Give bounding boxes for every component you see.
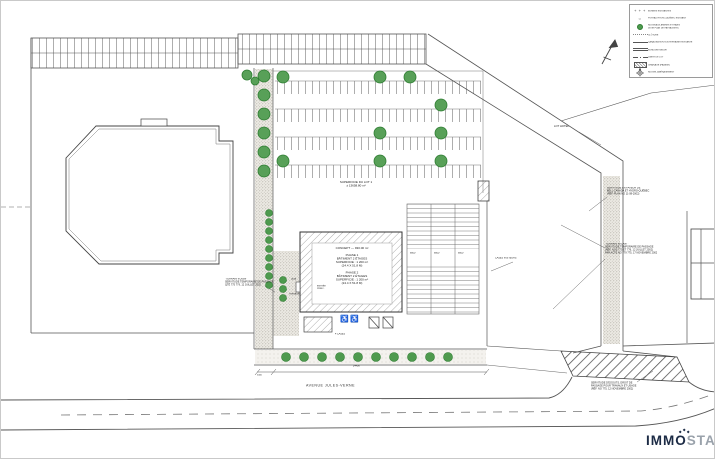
note-servitude-bell: SERVITUDE EN FAVEUR DE BELL CANADA ET HY… <box>607 187 649 196</box>
cases-visiteurs-label: CASES VISITEURS <box>495 257 516 260</box>
transformer-pad <box>478 181 489 201</box>
offset-dim-label: 5000 <box>257 374 262 377</box>
street-name-label: AVENUE JULES-VERNE <box>306 384 355 388</box>
legend-row: NOUVEL AMÉNAGEMENT <box>632 69 710 76</box>
quai-label: QUAI <box>291 278 296 281</box>
logo-text-star: STAR <box>687 433 715 448</box>
fence-line-icon <box>633 34 648 35</box>
wheelchair-icon: ♿ <box>340 315 349 323</box>
stall-dim-label: 6000 <box>410 252 415 255</box>
immostar-logo: IMMOSTAR <box>646 432 715 452</box>
entrance-driveway <box>561 351 689 382</box>
note-terrain-vacant: "TERRAIN VACANT" SERVITUDE TEMPORAIRE DE… <box>605 243 657 255</box>
compass-icon <box>635 67 645 77</box>
entrance-label: ENTRÉE PRINC. <box>317 285 326 290</box>
lot-limit-line-icon <box>633 57 648 58</box>
lot-area-label: SUPERFICIE DU LOT 1 ± 13658.80 m² <box>306 181 406 188</box>
stall-dim-label: 6000 <box>458 252 463 255</box>
logo-stars-icon <box>679 429 691 434</box>
legend-row: CLÔTURE <box>632 31 710 38</box>
legend-row: + + + BORNES EXISTANTES <box>632 7 710 14</box>
legend-row: BORDURE NEUVE <box>632 46 710 53</box>
cases-label: 4 CASES <box>335 333 345 336</box>
legend-row: ○ POTEAU HYDRO-QUÉBEC EXISTANT <box>632 15 710 22</box>
logo-text-immo: IMMO <box>646 433 687 448</box>
note-servitude-egouts: SERVITUDE D'ÉGOUTS, DROIT DE PASSAGE POU… <box>591 382 636 391</box>
site-plan-sheet: SUPERFICIE DU LOT 1 ± 13658.80 m² CONCEP… <box>0 0 715 459</box>
existing-building-outline <box>66 119 233 264</box>
pipe-line-icon <box>633 42 648 43</box>
wheelchair-icon: ♿ <box>350 315 359 323</box>
legend-row: LIMITE DE LOT <box>632 54 710 61</box>
hotel-parcel-lines <box>687 211 715 343</box>
terrasse-label: TERRASSE <box>289 293 301 296</box>
tree-icon <box>637 24 643 30</box>
curb-line-icon <box>633 48 648 51</box>
frontage-dim-label: 24400 <box>353 365 360 368</box>
building-label-block: CONCEPT — 930.00 m² PHASE 1 BÂTIMENT 2 É… <box>302 247 402 286</box>
note-terrain-voisin: "TERRAIN VOISIN" SERVITUDE TEMPORAIRE DE… <box>225 278 273 287</box>
utility-pole-icon: ○ <box>639 16 642 21</box>
lot-hotel-label: LOT HOTEL <box>554 125 569 128</box>
legend-row: NOUVEAUX ARBRES ET HAIES (VOIR PLAN DE P… <box>632 22 710 31</box>
dimension-line <box>255 369 489 375</box>
survey-markers-icon: + + + <box>634 8 646 13</box>
east-parking-stalls <box>407 201 487 346</box>
north-parking-strip <box>31 34 426 68</box>
legend-box: + + + BORNES EXISTANTES ○ POTEAU HYDRO-Q… <box>629 4 713 78</box>
north-arrow-icon <box>602 40 618 64</box>
legend-row: CANALISATION SOUTERRAINE EXISTANTE <box>632 39 710 46</box>
stall-dim-label: 6000 <box>434 252 439 255</box>
